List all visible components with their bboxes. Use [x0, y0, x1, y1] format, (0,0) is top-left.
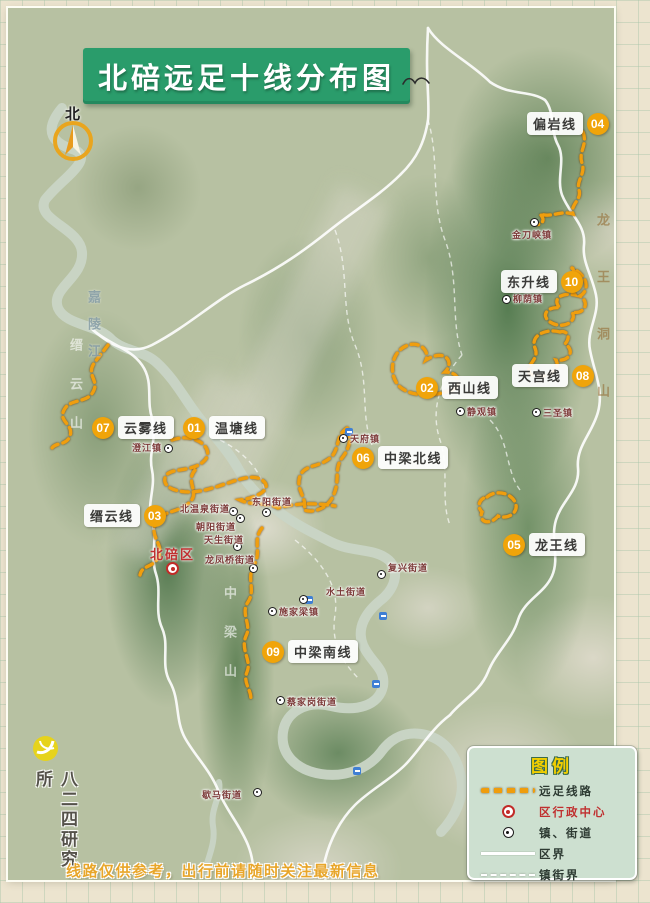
town-label: 北温泉街道 [180, 502, 230, 515]
legend-row-town-boundary: 镇街界 [477, 864, 627, 885]
trail-name-label: 龙王线 [529, 533, 585, 556]
legend-panel: 图例 远足线路 区行政中心 镇、街道 区界 镇街界 [467, 746, 637, 880]
legend-row-district-boundary: 区界 [477, 843, 627, 864]
town-marker [253, 788, 262, 797]
trail-number-badge: 04 [587, 113, 609, 135]
trail-tag-tiangong: 天宫线 08 [512, 364, 594, 387]
trail-wentang [165, 438, 335, 508]
trail-number-badge: 09 [262, 641, 284, 663]
town-marker [164, 444, 173, 453]
mountain-label-zhongliangshan: 中梁山 [220, 586, 239, 703]
trail-tag-dongsheng: 东升线 10 [501, 270, 583, 293]
trail-tag-longwang: 05 龙王线 [503, 533, 585, 556]
legend-row-town: 镇、街道 [477, 822, 627, 843]
bird-doodle-icon [401, 74, 431, 88]
trail-number-badge: 02 [416, 377, 438, 399]
district-center-marker-icon [502, 805, 515, 818]
river-jialing [44, 108, 462, 875]
poster: 嘉陵江 缙云山 中梁山 龙王洞山 金刀峡镇 柳荫镇 三圣镇 静观镇 天府镇 澄江… [0, 0, 650, 903]
trail-number-badge: 03 [144, 505, 166, 527]
legend-label: 镇、街道 [539, 825, 593, 841]
town-label: 歇马街道 [202, 788, 242, 801]
town-label: 柳荫镇 [513, 292, 543, 305]
trail-name-label: 温塘线 [209, 416, 265, 439]
trail-name-label: 天宫线 [512, 364, 568, 387]
trail-tag-zhongliang-north: 06 中梁北线 [352, 446, 448, 469]
town-boundaries [220, 120, 520, 680]
town-marker [456, 407, 465, 416]
district-center-marker [166, 562, 179, 575]
district-center-label: 北碚区 [150, 544, 195, 563]
town-label: 水土街道 [326, 585, 366, 598]
town-label: 三圣镇 [543, 406, 573, 419]
town-label: 东阳街道 [252, 495, 292, 508]
trail-name-label: 西山线 [442, 376, 498, 399]
institute-logo-icon [32, 735, 59, 762]
town-label: 天生街道 [204, 533, 244, 546]
town-label: 复兴街道 [388, 561, 428, 574]
town-label: 朝阳街道 [196, 520, 236, 533]
trail-tag-pianyan: 偏岩线 04 [527, 112, 609, 135]
town-marker [268, 607, 277, 616]
town-marker [262, 508, 271, 517]
town-marker [339, 434, 348, 443]
trail-number-badge: 01 [183, 417, 205, 439]
town-marker [236, 514, 245, 523]
bridge-icon [353, 767, 361, 775]
mountain-label-longwangdongshan: 龙王洞山 [593, 213, 612, 441]
trail-tag-jinyun: 缙云线 03 [84, 504, 166, 527]
legend-label: 区行政中心 [539, 804, 607, 820]
town-marker-icon [503, 827, 514, 838]
trail-number-badge: 05 [503, 534, 525, 556]
legend-title: 图例 [477, 752, 627, 777]
town-label: 澄江镇 [132, 441, 162, 454]
town-marker [299, 595, 308, 604]
trail-name-label: 中梁南线 [288, 640, 358, 663]
town-label: 龙凤桥街道 [205, 553, 255, 566]
trail-tag-zhongliang-south: 09 中梁南线 [262, 640, 358, 663]
trail-longwang [479, 493, 516, 522]
trail-number-badge: 07 [92, 417, 114, 439]
legend-row-trail: 远足线路 [477, 780, 627, 801]
district-boundary-line-icon [481, 852, 535, 855]
trail-number-badge: 10 [561, 271, 583, 293]
town-label: 静观镇 [467, 405, 497, 418]
map-title: 北碚远足十线分布图 [83, 48, 410, 104]
trail-dash-swatch-icon [481, 788, 535, 793]
trail-name-label: 缙云线 [84, 504, 140, 527]
river-label: 嘉陵江 [84, 290, 103, 371]
trail-number-badge: 08 [572, 365, 594, 387]
legend-row-district-center: 区行政中心 [477, 801, 627, 822]
trail-number-badge: 06 [352, 447, 374, 469]
town-marker [532, 408, 541, 417]
trail-tag-yunwu: 07 云雾线 [92, 416, 174, 439]
disclaimer-note: 线路仅供参考，出行前请随时关注最新信息 [66, 860, 380, 880]
trail-name-label: 云雾线 [118, 416, 174, 439]
bridge-icon [379, 612, 387, 620]
town-label: 天府镇 [350, 432, 380, 445]
trail-name-label: 东升线 [501, 270, 557, 293]
town-boundary-line-icon [481, 874, 535, 876]
town-label: 施家梁镇 [279, 605, 319, 618]
town-marker [276, 696, 285, 705]
town-marker [530, 218, 539, 227]
bridge-icon [372, 680, 380, 688]
town-label: 蔡家岗街道 [287, 695, 337, 708]
legend-label: 区界 [539, 846, 566, 862]
town-marker [502, 295, 511, 304]
mountain-label-jinyunshan: 缙云山 [66, 338, 85, 455]
legend-label: 镇街界 [539, 867, 580, 883]
trail-tag-xishan: 02 西山线 [416, 376, 498, 399]
trail-tag-wentang: 01 温塘线 [183, 416, 265, 439]
trail-name-label: 中梁北线 [378, 446, 448, 469]
legend-label: 远足线路 [539, 783, 593, 799]
trail-name-label: 偏岩线 [527, 112, 583, 135]
town-marker [377, 570, 386, 579]
town-label: 金刀峡镇 [512, 228, 552, 241]
compass-icon [53, 121, 93, 161]
